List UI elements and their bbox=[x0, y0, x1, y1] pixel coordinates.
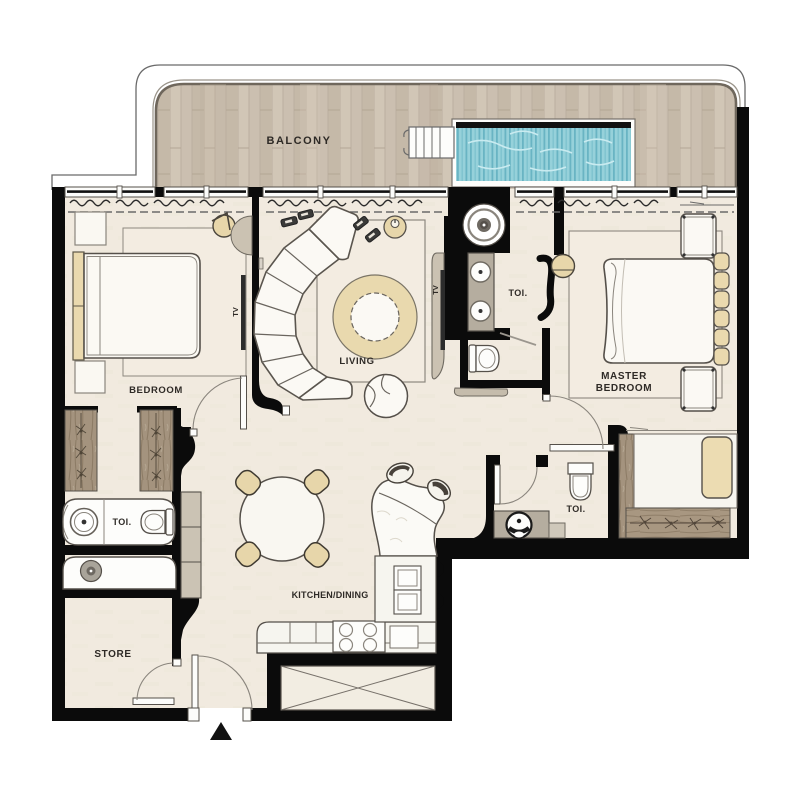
svg-text:LIVING: LIVING bbox=[339, 356, 374, 367]
svg-text:STORE: STORE bbox=[94, 649, 131, 660]
svg-text:BEDROOM: BEDROOM bbox=[129, 385, 183, 396]
svg-text:TOI.: TOI. bbox=[567, 504, 586, 514]
svg-text:TOI.: TOI. bbox=[113, 517, 132, 527]
svg-text:BEDROOM: BEDROOM bbox=[596, 383, 652, 394]
svg-text:MASTER: MASTER bbox=[601, 371, 647, 382]
svg-text:TOI.: TOI. bbox=[509, 288, 528, 298]
svg-text:BALCONY: BALCONY bbox=[267, 135, 332, 147]
svg-text:TV: TV bbox=[431, 285, 440, 295]
svg-text:TV: TV bbox=[231, 307, 240, 317]
svg-text:KITCHEN/DINING: KITCHEN/DINING bbox=[292, 590, 369, 600]
